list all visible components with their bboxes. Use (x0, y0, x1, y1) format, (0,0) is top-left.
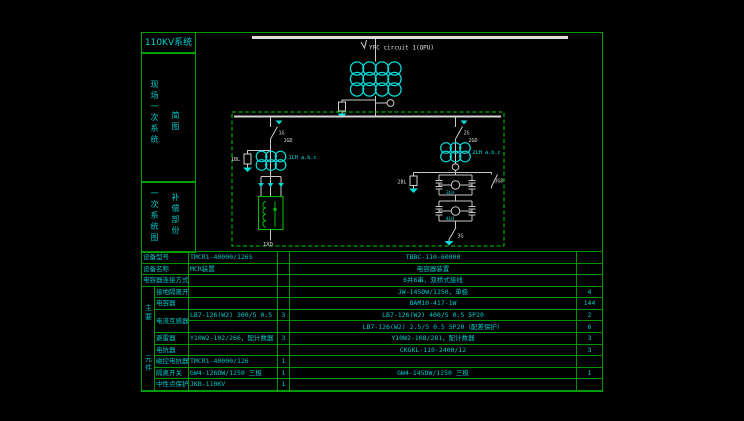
left-model (189, 286, 278, 298)
discharge-coil-icon (452, 164, 459, 171)
table-row: 磁控电抗器 TMCR1-40000/126 1 (142, 356, 603, 368)
capacitor-branch: 2G 2GD 2LH a.b.c 2BL 3GD 3LH 4LH (398, 117, 504, 246)
left-model (189, 298, 278, 310)
mcr-branch: 1G 1GD 1BL 1LH a.b.c 1XD (231, 117, 317, 248)
ct-label: 1LH a.b.c (289, 155, 317, 161)
switch-label: 2G (464, 131, 470, 137)
right-qty: 3 (577, 333, 603, 345)
table-row: LB7-126(W2) 2.5/5 0.5 5P20（配差保护） 6 (142, 321, 603, 333)
spec-label: 接地隔离开关 (155, 286, 189, 298)
left-qty (278, 252, 290, 264)
spec-label: 磁控电抗器 (155, 356, 189, 368)
left-model (189, 321, 278, 333)
right-qty: 4 (577, 286, 603, 298)
right-qty: 1 (577, 367, 603, 379)
earth-switch-label: 2GD (469, 138, 478, 144)
switch-label: 1G (279, 131, 285, 137)
right-model: 6并6串，双桥式接线 (290, 275, 577, 287)
branch-bottom-label: 1XD (263, 242, 273, 248)
ct-label: 2LH a.b.c (473, 150, 501, 156)
bypass-switch-label: 3GD (495, 179, 504, 185)
neutral-arrester-icon (339, 102, 346, 111)
table-row: 避雷器 Y10W2-102/266，配计数器 3 Y10W2-108/281，配… (142, 333, 603, 345)
spec-label: 设备名称 (142, 263, 189, 275)
left-qty (278, 298, 290, 310)
surge-counter-icon (387, 100, 394, 107)
phase-arrow-icon (268, 183, 274, 187)
right-model: TBBC-110-60000 (290, 252, 577, 264)
earth-indicator-icon (276, 121, 283, 125)
arrester-icon (244, 154, 251, 164)
right-qty (577, 252, 603, 264)
table-row: 设备型号 TMCR1-40000/126S TBBC-110-60000 (142, 252, 603, 264)
left-qty: 3 (278, 333, 290, 345)
right-model: Y10W2-108/281，配计数器 (290, 333, 577, 345)
feeder-label: YPC circuit 1(QPU) (369, 45, 434, 52)
right-model: LB7-126(W2) 400/5 0.5 5P20 (290, 309, 577, 321)
left-qty: 1 (278, 379, 290, 391)
right-qty (577, 356, 603, 368)
left-qty: 1 (278, 356, 290, 368)
right-qty: 2 (577, 309, 603, 321)
spec-label: 电流互感器 (155, 309, 189, 332)
equipment-spec-table: 设备型号 TMCR1-40000/126S TBBC-110-60000 设备名… (141, 251, 603, 391)
left-model: GW4-126DW/1250 三极 (189, 367, 278, 379)
bridge-ct-label: 4LH (446, 216, 454, 222)
ground-arrow-icon (445, 241, 454, 246)
spec-label: 电抗器 (155, 344, 189, 356)
right-model: CKGKL-110-2400/12 (290, 344, 577, 356)
left-qty (278, 263, 290, 275)
right-qty: 6 (577, 321, 603, 333)
left-model (189, 275, 278, 287)
left-qty (278, 286, 290, 298)
table-row: 隔离开关 GW4-126DW/1250 三极 1 GW4-145DW/1250 … (142, 367, 603, 379)
table-row: 设备名称 MCR装置 电容器装置 (142, 263, 603, 275)
spec-label: 电容器 (155, 298, 189, 310)
spec-label: 避雷器 (155, 333, 189, 345)
left-model: TMCR1-40000/126 (189, 356, 278, 368)
table-row: 电流互感器 LB7-126(W2) 300/5 0.5 5P20 3 LB7-1… (142, 309, 603, 321)
right-model: LB7-126(W2) 2.5/5 0.5 5P20（配差保护） (290, 321, 577, 333)
left-qty: 1 (278, 367, 290, 379)
left-qty (278, 344, 290, 356)
left-model: MCR装置 (189, 263, 278, 275)
right-model (290, 356, 577, 368)
right-qty: 3 (577, 344, 603, 356)
bottom-switch-label: 3G (458, 234, 464, 240)
earth-switch-label: 1GD (284, 138, 293, 144)
ground-icon (243, 168, 252, 173)
phase-arrow-icon (258, 183, 264, 187)
left-model: JKB-110KV (189, 379, 278, 391)
arrester-label: 1BL (231, 157, 240, 163)
reactor-coil-icon (263, 202, 266, 228)
right-model (290, 379, 577, 391)
right-model: JW-145DW/1250，单极 (290, 286, 577, 298)
right-qty: 144 (577, 298, 603, 310)
feeder-arrow-icon (361, 40, 367, 48)
arrester-icon (410, 176, 417, 186)
transformer-winding-icon (350, 62, 401, 96)
spec-label: 电容器连接方式 (142, 275, 189, 287)
right-qty (577, 275, 603, 287)
right-model: GW4-145DW/1250 三极 (290, 367, 577, 379)
left-model: Y10W2-102/266，配计数器 (189, 333, 278, 345)
table-row: 电抗器 CKGKL-110-2400/12 3 (142, 344, 603, 356)
left-qty (278, 275, 290, 287)
left-model: LB7-126(W2) 300/5 0.5 5P20 (189, 309, 278, 321)
right-model: 电容器装置 (290, 263, 577, 275)
reactor-box (259, 197, 284, 230)
table-row: 电容器 BAM10-417-1W 144 (142, 298, 603, 310)
table-row: 中性点保护装置 JKB-110KV 1 (142, 379, 603, 391)
table-row: 电容器连接方式 6并6串，双桥式接线 (142, 275, 603, 287)
phase-arrow-icon (278, 183, 284, 187)
left-model: TMCR1-40000/126S (189, 252, 278, 264)
ground-icon (409, 189, 418, 194)
spec-label: 中性点保护装置 (155, 379, 189, 391)
bridge-ct-label: 3LH (446, 190, 454, 196)
earth-indicator-icon (461, 121, 468, 125)
left-qty (278, 321, 290, 333)
arrester-label: 2BL (398, 180, 407, 186)
feeder-transformer: YPC circuit 1(QPU) (338, 39, 435, 118)
table-row: 主要 元件 接地隔离开关 JW-145DW/1250，单极 4 (142, 286, 603, 298)
right-model: BAM10-417-1W (290, 298, 577, 310)
spec-label: 设备型号 (142, 252, 189, 264)
spec-label: 隔离开关 (155, 367, 189, 379)
left-model (189, 344, 278, 356)
right-qty (577, 263, 603, 275)
left-qty: 3 (278, 309, 290, 321)
drawing-canvas: 110KV系统 现场一次系统 简图 一次系统图 补偿部份 YPC circui (0, 0, 744, 421)
main-components-group-label: 主要 元件 (142, 286, 155, 390)
right-qty (577, 379, 603, 391)
